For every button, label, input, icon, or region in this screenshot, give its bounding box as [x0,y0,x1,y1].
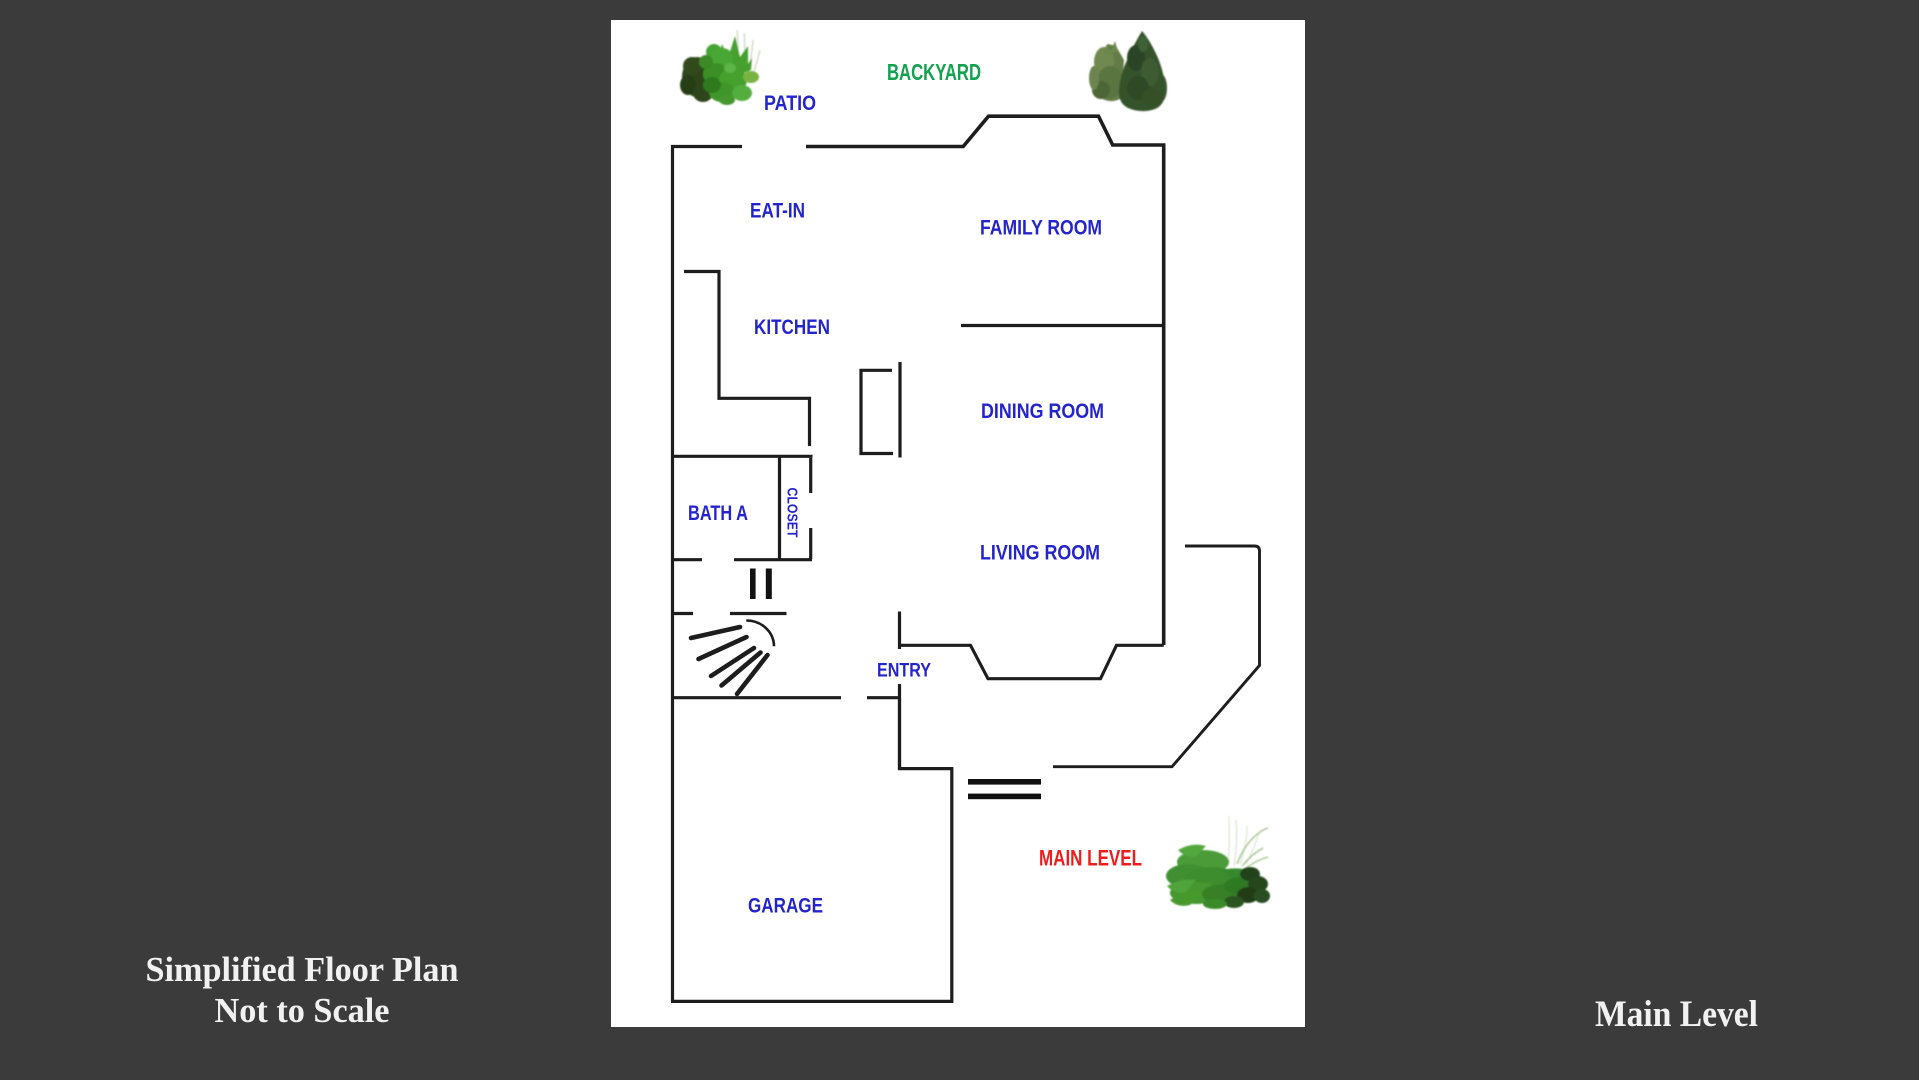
svg-text:Main Level: Main Level [1595,994,1758,1035]
svg-text:GARAGE: GARAGE [748,895,823,918]
svg-text:BACKYARD: BACKYARD [887,59,981,85]
svg-text:Simplified Floor Plan: Simplified Floor Plan [146,950,459,989]
svg-text:DINING ROOM: DINING ROOM [981,400,1104,423]
svg-text:BATH A: BATH A [688,502,748,525]
svg-text:FAMILY ROOM: FAMILY ROOM [980,217,1102,240]
svg-text:CLOSET: CLOSET [784,488,801,538]
svg-text:EAT-IN: EAT-IN [750,200,805,223]
svg-text:MAIN LEVEL: MAIN LEVEL [1039,846,1142,871]
svg-text:ENTRY: ENTRY [877,661,931,682]
svg-text:LIVING ROOM: LIVING ROOM [980,542,1100,565]
svg-text:KITCHEN: KITCHEN [754,316,830,339]
svg-text:Not to Scale: Not to Scale [215,991,390,1030]
svg-text:PATIO: PATIO [764,92,816,115]
